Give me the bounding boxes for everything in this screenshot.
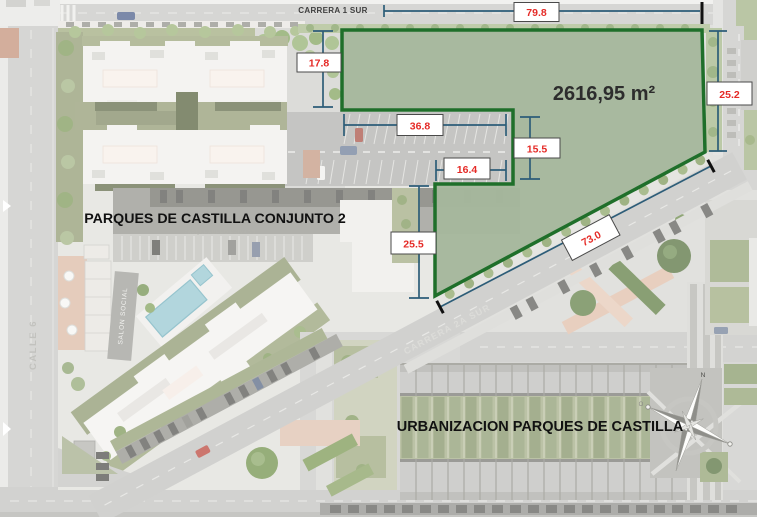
svg-text:2616,95 m²: 2616,95 m²: [553, 83, 656, 105]
svg-text:15.5: 15.5: [527, 144, 548, 156]
svg-text:PARQUES DE CASTILLA CONJUNTO 2: PARQUES DE CASTILLA CONJUNTO 2: [84, 211, 346, 227]
svg-text:CARRERA 1 SUR: CARRERA 1 SUR: [298, 6, 367, 15]
svg-text:36.8: 36.8: [410, 121, 431, 133]
svg-text:25.5: 25.5: [403, 239, 424, 251]
svg-text:N: N: [701, 372, 706, 379]
svg-text:17.8: 17.8: [309, 58, 330, 70]
svg-text:16.4: 16.4: [457, 164, 478, 176]
svg-text:CALLE 6: CALLE 6: [28, 320, 39, 370]
svg-text:25.2: 25.2: [719, 89, 740, 101]
svg-text:O: O: [639, 402, 644, 408]
svg-text:PARQUEADERO PRIVADO: PARQUEADERO PRIVADO: [184, 230, 256, 236]
svg-text:79.8: 79.8: [526, 7, 547, 19]
svg-text:URBANIZACION PARQUES DE CASTIL: URBANIZACION PARQUES DE CASTILLA: [397, 419, 684, 435]
